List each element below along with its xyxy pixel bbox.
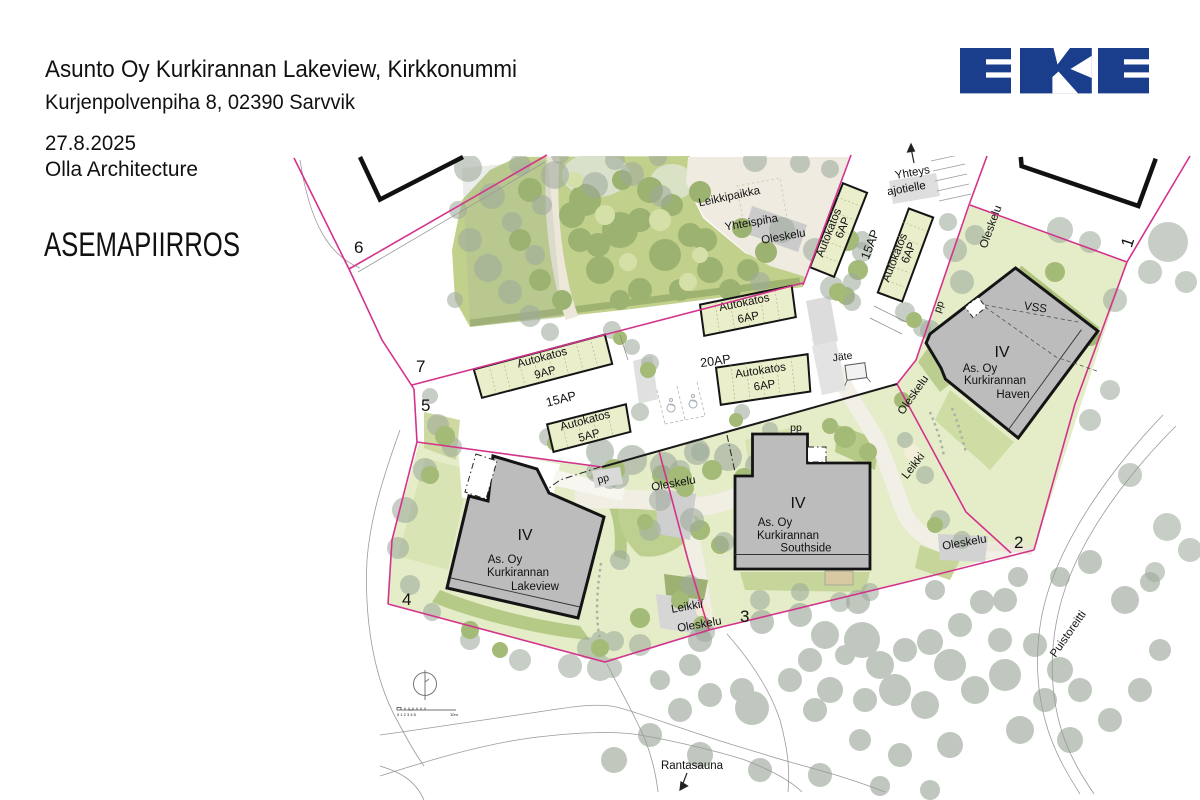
svg-text:pp: pp [790, 422, 802, 434]
svg-text:5: 5 [421, 396, 430, 415]
svg-text:Kurkirannan: Kurkirannan [964, 375, 1026, 387]
svg-text:IV: IV [790, 495, 805, 512]
svg-text:0 1 2 3 4 5: 0 1 2 3 4 5 [397, 712, 417, 717]
svg-text:Kurkirannan: Kurkirannan [487, 567, 549, 579]
svg-text:Asunto Oy Kurkirannan Lakeview: Asunto Oy Kurkirannan Lakeview, Kirkkonu… [45, 56, 517, 83]
svg-text:Rantasauna: Rantasauna [661, 760, 724, 772]
svg-text:As. Oy: As. Oy [488, 554, 523, 566]
svg-text:Kurkirannan: Kurkirannan [757, 530, 819, 542]
svg-text:ASEMAPIIRROS: ASEMAPIIRROS [44, 226, 240, 264]
svg-text:As. Oy: As. Oy [963, 363, 998, 375]
svg-text:Olla Architecture: Olla Architecture [45, 158, 198, 181]
svg-text:4: 4 [402, 590, 411, 609]
svg-text:27.8.2025: 27.8.2025 [45, 132, 136, 155]
svg-text:10m: 10m [450, 712, 458, 717]
svg-text:3: 3 [740, 607, 749, 626]
svg-text:Lakeview: Lakeview [511, 581, 560, 593]
svg-text:7: 7 [416, 357, 425, 376]
svg-text:IV: IV [994, 344, 1009, 361]
svg-text:IV: IV [517, 527, 532, 544]
svg-text:2: 2 [1014, 533, 1023, 552]
svg-text:Southside: Southside [780, 543, 831, 555]
svg-text:6: 6 [354, 238, 363, 257]
svg-text:As. Oy: As. Oy [758, 517, 793, 529]
svg-text:Kurjenpolvenpiha 8, 02390 Sarv: Kurjenpolvenpiha 8, 02390 Sarvvik [45, 91, 355, 114]
svg-text:Haven: Haven [996, 389, 1029, 401]
